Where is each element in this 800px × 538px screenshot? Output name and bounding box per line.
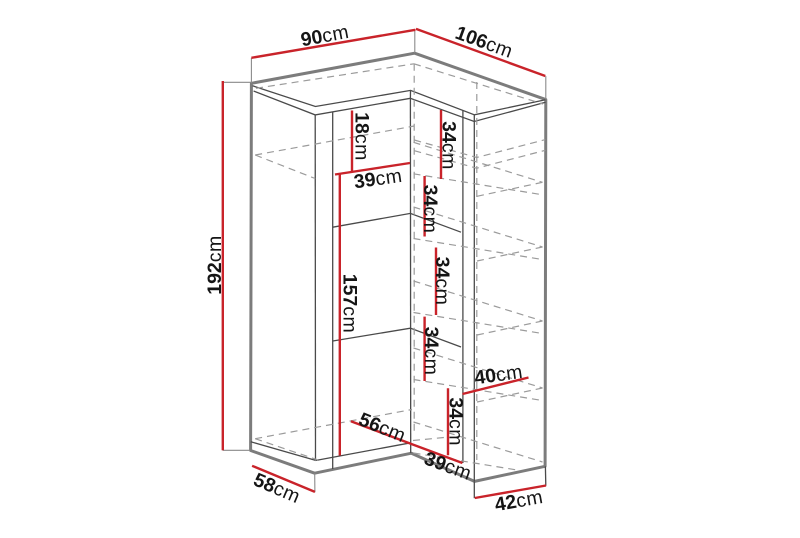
svg-text:34cm: 34cm	[437, 121, 459, 170]
svg-text:34cm: 34cm	[420, 327, 442, 376]
svg-text:34cm: 34cm	[419, 185, 441, 234]
svg-text:157cm: 157cm	[338, 274, 360, 334]
svg-text:192cm: 192cm	[204, 235, 226, 295]
svg-text:34cm: 34cm	[431, 257, 453, 306]
svg-text:18cm: 18cm	[350, 112, 372, 161]
svg-text:34cm: 34cm	[445, 397, 467, 446]
